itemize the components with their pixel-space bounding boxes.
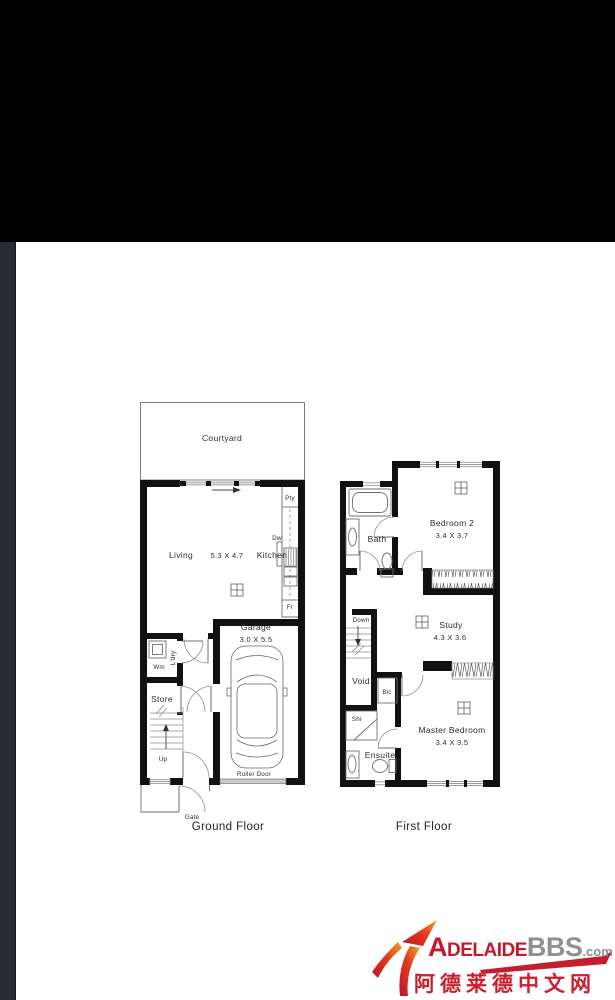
- floorplan-page: Courtyard: [0, 0, 615, 1000]
- porch-and-gate: [141, 785, 210, 812]
- washing-machine-label: Wm: [153, 664, 165, 671]
- bath-label: Bath: [368, 534, 387, 544]
- car-icon: [227, 646, 287, 768]
- shower-label: Shr: [352, 716, 362, 723]
- study-label: Study: [439, 620, 463, 630]
- gate-label: Gate: [185, 814, 200, 821]
- master-bedroom-label: Master Bedroom: [418, 725, 485, 735]
- bedroom2-label: Bedroom 2: [430, 518, 474, 528]
- void-label: Void: [352, 676, 370, 686]
- ground-exterior-walls: [140, 480, 305, 785]
- floorplan-drawing: Courtyard: [0, 0, 615, 1000]
- stair-break-line: [156, 705, 167, 717]
- slide-direction-arrow-icon: [233, 487, 241, 493]
- brand-adelaide: Adelaide: [428, 932, 527, 962]
- brand-wordmark: AdelaideBBS.com: [428, 932, 613, 963]
- roller-door: [220, 779, 286, 784]
- bathtub-icon: [349, 489, 391, 516]
- adelaidebbs-watermark: AdelaideBBS.com 阿德莱德中文网: [368, 916, 615, 1000]
- ground-window: [150, 780, 170, 784]
- ground-doors: [181, 639, 211, 778]
- garage-label: Garage: [241, 622, 271, 632]
- ceiling-fan-icon: [455, 482, 467, 494]
- toilet-icon: [373, 760, 397, 773]
- first-interior-walls: [340, 487, 493, 780]
- study-dims: 4.3 X 3.6: [434, 633, 467, 642]
- store-label: Store: [151, 694, 173, 704]
- master-bedroom-dims: 3.4 X 3.5: [436, 738, 469, 747]
- first-doors: [360, 517, 423, 748]
- fridge-label: Fr: [287, 604, 293, 611]
- living-dims: 5.3 X 4.7: [211, 551, 244, 560]
- courtyard-label: Courtyard: [202, 433, 242, 443]
- ceiling-fan-icon: [416, 616, 428, 628]
- cupboard-label: Bic: [382, 689, 391, 696]
- brand-tld: .com: [582, 944, 612, 959]
- bedroom2-dims: 3.4 X 3.7: [436, 531, 469, 540]
- drawer-icon: [284, 567, 297, 576]
- ceiling-fan-icon: [458, 702, 470, 714]
- washing-machine-icon: [149, 641, 166, 658]
- first-floor-plan: Bath Bedroom 2 3.4 X 3.7 Study 4.3 X 3.6…: [340, 461, 500, 833]
- ground-floor-caption: Ground Floor: [192, 821, 265, 833]
- ceiling-fan-icon: [231, 584, 243, 596]
- down-label: Down: [353, 617, 370, 624]
- ground-floor-plan: Courtyard: [140, 403, 305, 834]
- wardrobe-bedroom2: [432, 570, 493, 588]
- drawer-icon: [284, 577, 297, 586]
- living-label: Living: [169, 550, 193, 560]
- bath-fixtures: [346, 489, 393, 577]
- brand-chinese-text: 阿德莱德中文网: [414, 968, 596, 998]
- up-label: Up: [159, 756, 168, 763]
- sliding-door: [180, 481, 261, 493]
- dishwasher-label: Dw: [272, 535, 282, 542]
- pantry-label: Pty: [285, 495, 295, 502]
- down-arrow-icon: [355, 639, 361, 646]
- stairs-down: [346, 626, 371, 658]
- wardrobe-master: [452, 663, 493, 679]
- first-floor-caption: First Floor: [396, 821, 452, 833]
- roller-door-label: Roller Door: [237, 771, 271, 778]
- basin-icon: [346, 519, 359, 555]
- basin-icon: [346, 751, 359, 778]
- laundry-label: L'dry: [170, 650, 177, 665]
- laundry-room: [149, 641, 166, 658]
- ensuite-label: Ensuite: [365, 750, 395, 760]
- garage-dims: 3.0 X 5.5: [240, 635, 273, 644]
- kitchen-label: Kitchen: [257, 550, 287, 560]
- brand-bbs: BBS: [527, 932, 583, 962]
